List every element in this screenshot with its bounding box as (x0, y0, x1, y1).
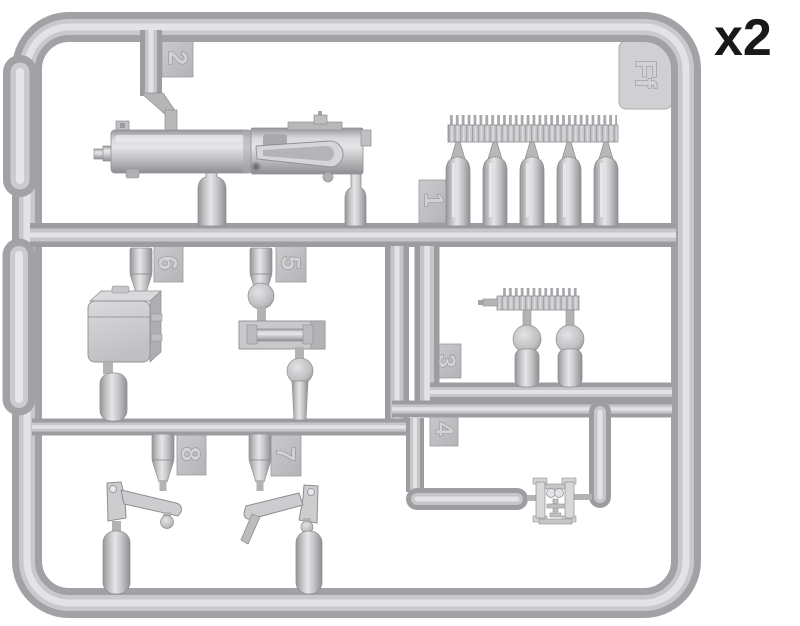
sprue-letter-tag: Ff (619, 41, 672, 109)
bracket-crossbar (547, 504, 564, 508)
belt-strip (448, 125, 618, 142)
bracket-lug (247, 325, 257, 344)
bracket-base (539, 519, 572, 524)
part-tab-1: 1 (419, 180, 449, 223)
gate-bottle (103, 531, 130, 594)
sprue-drawing: Ff 2 1 6 5 3 (0, 0, 800, 626)
gate-bottle (483, 142, 507, 226)
bracket-slide-bar (251, 329, 309, 341)
belt-pin (483, 299, 498, 306)
gun-muzzle-tip (94, 149, 104, 159)
gun-front-sight-notch (120, 123, 125, 128)
box-latch (151, 334, 162, 341)
part-number: 8 (176, 447, 206, 461)
part-number: 4 (430, 422, 458, 436)
handle-lever (241, 514, 260, 544)
part-ammo-belt-long (446, 115, 618, 226)
bracket-top-bar (545, 484, 565, 489)
box-side-face (150, 291, 161, 362)
part-handle-left (103, 434, 181, 594)
part-tab-7: 7 (271, 432, 301, 476)
gun-rear-post (361, 130, 371, 146)
gate-bottle (100, 373, 127, 421)
sprue-diagram: Ff 2 1 6 5 3 (0, 0, 800, 626)
gun-rear-sight (314, 115, 327, 124)
gate-ball (161, 516, 174, 529)
part-tab-5: 5 (276, 245, 306, 282)
gate-stub (573, 494, 592, 500)
gate-cone (152, 434, 174, 491)
gate-cone (292, 381, 308, 420)
gun-detail-ring-hole (254, 165, 259, 170)
box-front-face (88, 301, 150, 362)
gate-bottle (520, 142, 544, 226)
part-tab-8: 8 (176, 432, 206, 475)
gate-ball (248, 283, 274, 309)
gate-bottle (513, 310, 541, 387)
gun-rear-sight-pin (318, 111, 322, 116)
gate-stub (527, 495, 537, 501)
bracket-foot (550, 513, 561, 517)
gate-bottle (296, 531, 322, 594)
sprue-letter: Ff (629, 60, 662, 89)
box-handle (112, 286, 129, 293)
part-number: 2 (163, 51, 193, 65)
part-mount-bracket (527, 478, 592, 524)
part-number: 6 (153, 256, 183, 270)
belt-strip (497, 296, 579, 310)
part-tab-2: 2 (162, 39, 193, 77)
part-tab-6: 6 (153, 245, 183, 282)
belt-pin-tip (478, 300, 484, 305)
part-ammo-box (88, 248, 162, 421)
support-cone (345, 171, 366, 226)
box-latch (151, 314, 162, 321)
part-number: 7 (271, 447, 301, 461)
part-number: 5 (276, 256, 306, 270)
gate-bottle (594, 142, 618, 226)
gate-bottle (556, 310, 584, 387)
bracket-post (536, 482, 545, 518)
gate-bottle (446, 142, 470, 226)
belt-cartridges (449, 115, 617, 126)
bracket-lug (303, 325, 313, 344)
gate-stub (103, 362, 113, 374)
gun-jacket-drain (126, 169, 139, 178)
handle-hole (308, 489, 315, 496)
quantity-label: x2 (714, 8, 800, 68)
gate-cone-top (141, 93, 177, 131)
bracket-roller (555, 489, 564, 498)
part-machine-gun (94, 111, 371, 226)
sprue-runners (19, 30, 676, 499)
bracket-post (565, 482, 574, 518)
gate-ball (287, 358, 313, 384)
handle-grip (121, 490, 181, 516)
part-ammo-belt-short (478, 288, 584, 387)
handle-hole (110, 486, 117, 493)
gate-cone (249, 434, 271, 491)
gun-jacket-highlight (115, 135, 245, 142)
part-number: 1 (419, 193, 449, 207)
gun-bottom-knob (323, 172, 333, 182)
gate-bottle (557, 142, 581, 226)
